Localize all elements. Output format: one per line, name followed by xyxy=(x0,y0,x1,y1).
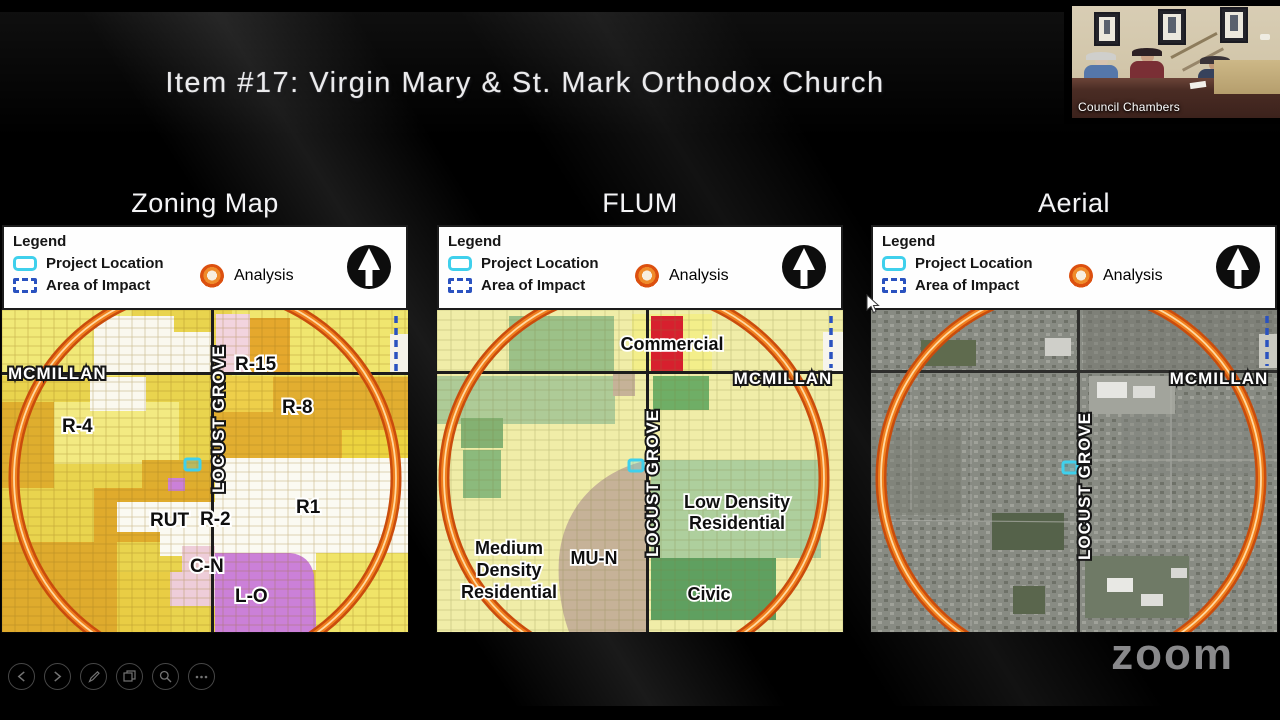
webcam-name-label: Council Chambers xyxy=(1078,100,1180,114)
next-icon xyxy=(52,671,63,682)
road-label-mcmillan: MCMILLAN xyxy=(734,369,833,388)
north-arrow-icon xyxy=(345,243,393,291)
north-arrow-icon xyxy=(780,243,828,291)
zone-label-lo: L-O xyxy=(235,586,268,607)
legend-aerial: Legend Project Location Area of Impact A… xyxy=(871,225,1277,310)
panel-title-aerial: Aerial xyxy=(871,186,1277,220)
legend-analysis-label: Analysis xyxy=(1103,267,1163,285)
legend-area-of-impact-label: Area of Impact xyxy=(915,277,1019,294)
aerial-map-image: MCMILLAN LOCUST GROVE xyxy=(871,310,1277,632)
zone-label-r1: R1 xyxy=(296,497,321,518)
analysis-circle-icon xyxy=(635,264,659,288)
zone-label-r2: R-2 xyxy=(200,509,231,530)
legend-zoning: Legend Project Location Area of Impact A… xyxy=(2,225,408,310)
presenter-toolbar xyxy=(8,663,215,690)
wall-portrait xyxy=(1220,7,1248,43)
road-label-mcmillan: MCMILLAN xyxy=(1170,369,1269,388)
more-options-button[interactable] xyxy=(188,663,215,690)
legend-row-analysis: Analysis xyxy=(200,264,294,288)
video-frame: Item #17: Virgin Mary & St. Mark Orthodo… xyxy=(0,0,1280,720)
legend-area-of-impact-label: Area of Impact xyxy=(46,277,150,294)
zone-label-r8: R-8 xyxy=(282,397,313,418)
legend-row-analysis: Analysis xyxy=(635,264,729,288)
zoning-map-image: MCMILLAN LOCUST GROVE R-15 R-8 R-4 RUT R… xyxy=(2,310,408,632)
pen-button[interactable] xyxy=(80,663,107,690)
legend-analysis-label: Analysis xyxy=(669,267,729,285)
zone-label-rut: RUT xyxy=(150,510,189,531)
panel-title-flum: FLUM xyxy=(437,186,843,220)
panel-title-zoning: Zoning Map xyxy=(2,186,408,220)
analysis-circle-icon xyxy=(200,264,224,288)
see-all-slides-button[interactable] xyxy=(116,663,143,690)
slide-title: Item #17: Virgin Mary & St. Mark Orthodo… xyxy=(0,67,1050,100)
area-of-impact-icon xyxy=(882,278,906,293)
area-of-impact-icon xyxy=(448,278,472,293)
legend-analysis-label: Analysis xyxy=(234,267,294,285)
zoom-slide-button[interactable] xyxy=(152,663,179,690)
zone-label-civic: Civic xyxy=(687,584,730,604)
panel-zoning: Zoning Map Legend Project Location Area … xyxy=(2,186,408,632)
legend-area-of-impact-label: Area of Impact xyxy=(481,277,585,294)
project-location-icon xyxy=(13,256,37,271)
zone-label-cn: C-N xyxy=(190,556,224,577)
zone-label-r4: R-4 xyxy=(62,416,93,437)
legend-title: Legend xyxy=(882,233,1266,250)
flum-map-image: Commercial MCMILLAN LOCUST GROVE Low Den… xyxy=(437,310,843,632)
webcam-video: Council Chambers xyxy=(1072,6,1280,118)
mouse-cursor xyxy=(866,294,881,314)
zone-label-medium-density-line3: Residential xyxy=(461,582,557,602)
wall-portrait xyxy=(1158,9,1186,45)
legend-project-location-label: Project Location xyxy=(481,255,599,272)
north-arrow-icon xyxy=(1214,243,1262,291)
road-label-locust-grove: LOCUST GROVE xyxy=(1075,412,1094,560)
see-all-slides-icon xyxy=(123,670,136,683)
zone-label-medium-density-line2: Density xyxy=(476,560,541,580)
wall-portrait xyxy=(1094,12,1120,46)
zoom-watermark: zoom xyxy=(1111,630,1234,680)
road-label-locust-grove: LOCUST GROVE xyxy=(209,345,228,493)
zone-label-commercial: Commercial xyxy=(620,334,723,354)
zone-label-mun: MU-N xyxy=(571,548,618,568)
project-location-marker xyxy=(629,460,643,471)
previous-slide-button[interactable] xyxy=(8,663,35,690)
pen-icon xyxy=(88,671,100,683)
project-location-icon xyxy=(448,256,472,271)
panel-flum: FLUM Legend Project Location Area of Imp… xyxy=(437,186,843,632)
webcam-panel: Council Chambers xyxy=(1064,0,1280,124)
legend-project-location-label: Project Location xyxy=(915,255,1033,272)
zone-label-medium-density-line1: Medium xyxy=(475,538,543,558)
panel-aerial: Aerial Legend Project Location Area of I… xyxy=(871,186,1277,632)
zone-label-low-density-line1: Low Density xyxy=(684,492,790,512)
project-location-marker xyxy=(185,459,200,470)
previous-icon xyxy=(16,671,27,682)
ellipsis-icon xyxy=(195,675,208,679)
zone-label-low-density-line2: Residential xyxy=(689,513,785,533)
next-slide-button[interactable] xyxy=(44,663,71,690)
thermostat xyxy=(1260,34,1270,40)
desk xyxy=(1214,60,1280,94)
analysis-circle-icon xyxy=(1069,264,1093,288)
legend-flum: Legend Project Location Area of Impact A… xyxy=(437,225,843,310)
legend-project-location-label: Project Location xyxy=(46,255,164,272)
magnifier-icon xyxy=(159,670,172,683)
road-label-locust-grove: LOCUST GROVE xyxy=(643,409,662,557)
legend-title: Legend xyxy=(448,233,832,250)
project-location-icon xyxy=(882,256,906,271)
road-label-mcmillan: MCMILLAN xyxy=(8,364,107,383)
legend-row-analysis: Analysis xyxy=(1069,264,1163,288)
legend-title: Legend xyxy=(13,233,397,250)
zone-label-r15: R-15 xyxy=(235,354,277,375)
area-of-impact-icon xyxy=(13,278,37,293)
